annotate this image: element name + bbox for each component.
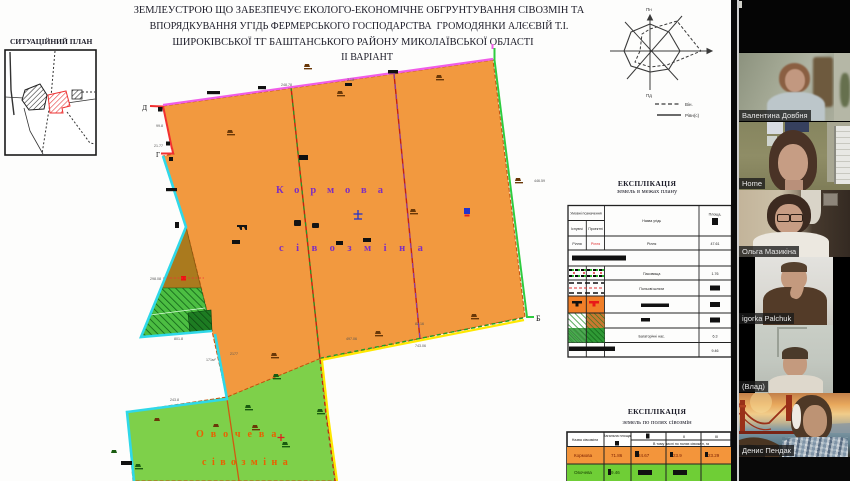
svg-text:Рілля: Рілля bbox=[647, 242, 656, 246]
svg-text:Проектні: Проектні bbox=[588, 227, 603, 231]
svg-text:47.61: 47.61 bbox=[711, 242, 720, 246]
svg-text:Він.: Він. bbox=[685, 102, 693, 107]
svg-text:82.16: 82.16 bbox=[415, 322, 424, 326]
svg-text:497.06: 497.06 bbox=[346, 337, 357, 341]
svg-text:6.3: 6.3 bbox=[713, 335, 718, 339]
svg-text:Польові шляхи: Польові шляхи bbox=[639, 287, 664, 291]
svg-text:9.46: 9.46 bbox=[611, 470, 620, 475]
svg-text:298.08: 298.08 bbox=[150, 277, 161, 281]
svg-text:Пн: Пн bbox=[646, 7, 652, 12]
svg-text:ІІ: ІІ bbox=[683, 434, 685, 439]
svg-text:Назва сівозміни: Назва сівозміни bbox=[572, 438, 598, 442]
svg-text:Багаторічні нас.: Багаторічні нас. bbox=[639, 335, 665, 339]
svg-text:446.59: 446.59 bbox=[534, 179, 545, 183]
svg-text:Овочева: Овочева bbox=[196, 429, 283, 440]
svg-text:Рівн(с): Рівн(с) bbox=[685, 113, 700, 118]
svg-text:24.67: 24.67 bbox=[638, 453, 650, 458]
svg-text:Кормова: Кормова bbox=[276, 185, 394, 196]
svg-text:1.76: 1.76 bbox=[712, 272, 719, 276]
svg-text:Рілля: Рілля bbox=[572, 242, 581, 246]
svg-text:Б: Б bbox=[536, 314, 541, 323]
svg-text:Загальна площа: Загальна площа bbox=[603, 434, 630, 438]
svg-text:Існуючі: Існуючі bbox=[571, 227, 583, 231]
svg-text:Пд: Пд bbox=[646, 93, 652, 98]
svg-text:99.8: 99.8 bbox=[156, 124, 163, 128]
svg-text:сівозміна: сівозміна bbox=[202, 457, 293, 468]
svg-text:2177: 2177 bbox=[230, 352, 238, 356]
svg-text:801.8: 801.8 bbox=[174, 337, 183, 341]
svg-text:Пасовища: Пасовища bbox=[643, 272, 660, 276]
svg-text:743.06: 743.06 bbox=[415, 344, 426, 348]
svg-text:23.29: 23.29 bbox=[708, 453, 720, 458]
svg-text:Площа,: Площа, bbox=[709, 213, 722, 217]
svg-text:Овочева: Овочева bbox=[574, 470, 592, 475]
svg-text:23.9: 23.9 bbox=[673, 453, 682, 458]
svg-text:243.8: 243.8 bbox=[170, 398, 179, 402]
svg-text:248.78: 248.78 bbox=[281, 83, 292, 87]
svg-text:Кормова: Кормова bbox=[574, 453, 593, 458]
svg-text:Рілля: Рілля bbox=[591, 242, 600, 246]
svg-text:71.86: 71.86 bbox=[611, 453, 623, 458]
svg-text:Умовні позначення: Умовні позначення bbox=[570, 212, 602, 216]
svg-text:21.77: 21.77 bbox=[154, 144, 163, 148]
svg-text:В тому числі по полях сівозмін: В тому числі по полях сівозмін, га bbox=[653, 442, 709, 446]
svg-text:Г: Г bbox=[156, 151, 160, 159]
svg-text:9.46: 9.46 bbox=[712, 349, 719, 353]
svg-text:171м²: 171м² bbox=[206, 358, 216, 362]
svg-text:сівозміна: сівозміна bbox=[279, 243, 435, 254]
svg-text:Назва угідь: Назва угідь bbox=[642, 219, 661, 223]
svg-text:ІІІ: ІІІ bbox=[715, 434, 718, 439]
svg-text:2.18: 2.18 bbox=[347, 78, 354, 82]
svg-text:Д: Д bbox=[142, 103, 147, 112]
